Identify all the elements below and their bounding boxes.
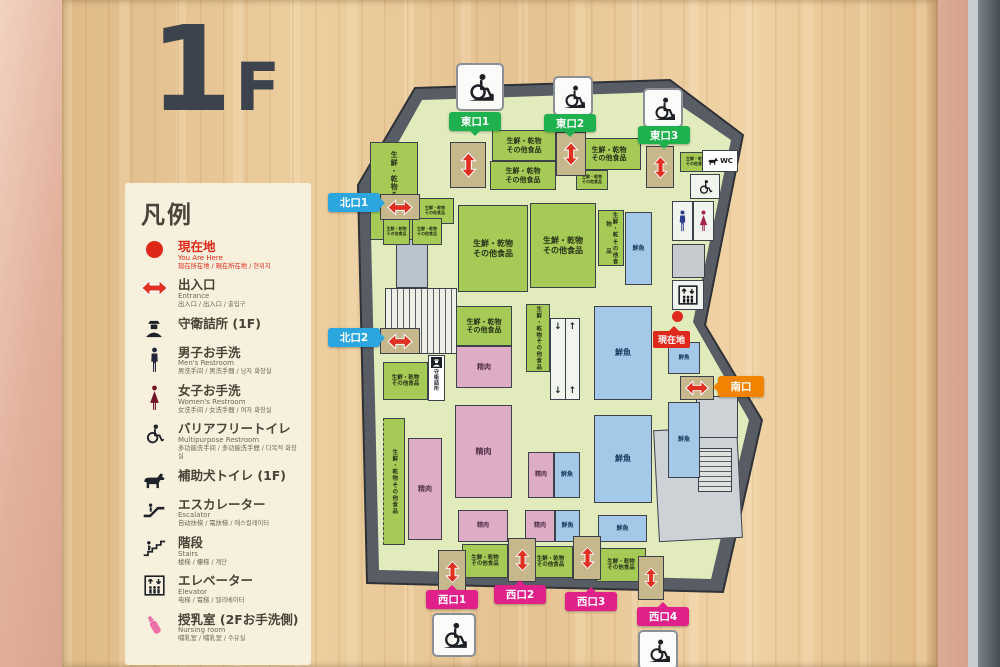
map-area-meat: 精肉 <box>458 510 508 542</box>
map-area-fresh: 生鮮・乾物その他食品 <box>383 218 410 245</box>
floor-map: ↓↓ ↑↑ 生鮮・乾物その他食品 生鮮・乾物その他食品 生鮮・乾物その他食品 生… <box>350 30 780 667</box>
legend-item-womens-restroom: 女子お手洗 Women's Restroom 女洗手间 / 女洗手間 / 여자 … <box>139 384 301 414</box>
elevator-icon <box>678 285 698 305</box>
map-area-fish: 鮮魚 <box>554 452 580 498</box>
map-area-fresh: 生鮮・乾物その他食品 <box>530 203 596 288</box>
wheelchair-ramp-sign <box>553 76 593 116</box>
map-area-fresh: 生鮮・乾物その他食品 <box>526 304 550 372</box>
map-area-fresh: 生鮮・乾物その他食品 <box>598 210 624 266</box>
legend-item-nursing-room: 授乳室 (2Fお手洗側) Nursing room 哺乳室 / 哺乳室 / 수유… <box>139 613 301 643</box>
door-frame-dark <box>978 0 1000 667</box>
floor-guide-sign: 1F 凡例 現在地 You Are Here 现在所在地 / 現在所在地 / 현… <box>0 0 1000 667</box>
man-icon <box>139 346 169 373</box>
assist-dog-icon <box>139 469 169 490</box>
legend-item-mens-restroom: 男子お手洗 Men's Restroom 男洗手间 / 男洗手間 / 남자 화장… <box>139 346 301 376</box>
exit-label-east-1: 東口1 <box>449 112 501 131</box>
exit-label-west-1: 西口1 <box>426 590 478 609</box>
elevator-icon <box>139 574 169 596</box>
map-area-meat: 精肉 <box>528 452 554 498</box>
map-area-fresh: 生鮮・乾物その他食品 <box>383 418 405 545</box>
escalator-icon <box>139 498 169 520</box>
exit-label-north-1: 北口1 <box>328 193 380 212</box>
entrance-arrow-icon <box>653 154 668 181</box>
exit-label-east-2: 東口2 <box>544 114 596 132</box>
map-area-fresh: 生鮮・乾物その他食品 <box>462 544 508 578</box>
service-room <box>696 396 738 438</box>
elevator-cell <box>672 280 704 310</box>
door-frame-light <box>968 0 978 667</box>
wheelchair-icon <box>697 179 713 195</box>
right-wall <box>938 0 968 667</box>
legend-item-current-location: 現在地 You Are Here 现在所在地 / 現在所在地 / 현위치 <box>139 240 301 270</box>
entrance-arrow-icon <box>580 544 595 572</box>
womens-restroom-cell <box>693 201 714 241</box>
map-area-fresh: 生鮮・乾物その他食品 <box>492 130 556 161</box>
legend-item-barrier-free-toilet: バリアフリートイレ Multipurpose Restroom 多功能洗手间 /… <box>139 422 301 460</box>
exit-west-4 <box>638 556 664 600</box>
nursing-bottle-icon <box>139 613 169 636</box>
exit-west-3 <box>573 536 601 580</box>
legend-item-escalator: エスカレーター Escalator 自动扶梯 / 電扶梯 / 에스컬레이터 <box>139 498 301 528</box>
legend-panel: 凡例 現在地 You Are Here 现在所在地 / 現在所在地 / 현위치 … <box>125 183 311 665</box>
map-area-fish: 鮮魚 <box>598 515 647 542</box>
exit-label-east-3: 東口3 <box>638 126 690 144</box>
guard-icon <box>139 317 169 338</box>
map-area-fresh: 生鮮・乾物その他食品 <box>383 362 428 400</box>
entrance-arrow-icon <box>644 564 658 592</box>
wheelchair-ramp-sign <box>638 630 678 667</box>
stairs-southeast <box>698 448 732 492</box>
entrance-arrows-icon <box>139 278 169 297</box>
service-room <box>672 244 705 278</box>
mens-restroom-cell <box>672 201 693 241</box>
current-location-label: 現在地 <box>653 331 690 348</box>
exit-east-1 <box>450 142 486 188</box>
wheelchair-ramp-icon <box>646 638 671 663</box>
exit-label-west-3: 西口3 <box>565 592 617 611</box>
entrance-arrow-icon <box>460 150 477 180</box>
escalator-bank: ↓↓ ↑↑ <box>550 318 580 400</box>
legend-item-entrance: 出入口 Entrance 出入口 / 出入口 / 출입구 <box>139 278 301 308</box>
floor-suffix: F <box>235 49 280 126</box>
woman-icon <box>698 209 709 233</box>
map-area-fish: 鮮魚 <box>625 212 652 285</box>
escalator-lane-up: ↑↑ <box>565 319 580 399</box>
escalator-lane-down: ↓↓ <box>551 319 565 399</box>
map-area-fresh: 生鮮・乾物その他食品 <box>577 138 641 170</box>
wheelchair-ramp-icon <box>465 72 495 102</box>
barrier-free-toilet <box>690 174 720 199</box>
legend-item-stairs: 階段 Stairs 楼梯 / 樓梯 / 계단 <box>139 536 301 566</box>
entrance-arrow-icon <box>683 380 711 396</box>
guard-icon <box>431 357 442 368</box>
wheelchair-ramp-sign <box>456 63 504 111</box>
map-area-meat: 精肉 <box>456 346 512 388</box>
map-area-fish: 鮮魚 <box>668 402 700 478</box>
wheelchair-ramp-sign <box>432 613 476 657</box>
current-location-icon <box>139 240 169 258</box>
legend-item-elevator: エレベーター Elevator 电梯 / 電梯 / 엘리베이터 <box>139 574 301 604</box>
legend-item-assist-dog-toilet: 補助犬トイレ (1F) <box>139 469 301 490</box>
woman-icon <box>139 384 169 411</box>
map-area-fish: 鮮魚 <box>594 306 652 400</box>
man-icon <box>677 209 688 233</box>
map-area-meat: 精肉 <box>455 405 512 498</box>
entrance-arrow-icon <box>563 140 579 168</box>
wheelchair-ramp-sign <box>643 88 683 128</box>
assist-dog-icon <box>707 156 719 166</box>
wheelchair-ramp-icon <box>651 96 676 121</box>
exit-label-south: 南口 <box>718 376 764 397</box>
map-area-fresh: 生鮮・乾物その他食品 <box>412 218 442 245</box>
left-wall <box>0 0 62 667</box>
stairs-icon <box>139 536 169 558</box>
exit-label-north-2: 北口2 <box>328 328 380 347</box>
legend-item-guard-station: 守衛詰所 (1F) <box>139 317 301 338</box>
map-area-fresh: 生鮮・乾物その他食品 <box>458 205 528 292</box>
floor-title: 1F <box>150 10 280 128</box>
assist-dog-wc: WC <box>702 150 738 172</box>
exit-label-west-4: 西口4 <box>637 607 689 626</box>
map-area-fresh: 生鮮・乾物その他食品 <box>456 306 512 346</box>
service-room <box>396 238 428 288</box>
exit-label-west-2: 西口2 <box>494 585 546 604</box>
map-area-meat: 精肉 <box>408 438 442 540</box>
wheelchair-ramp-icon <box>561 84 586 109</box>
wheelchair-ramp-icon <box>440 621 468 649</box>
wheelchair-icon <box>139 422 169 445</box>
floor-number: 1 <box>150 0 230 138</box>
map-area-fresh: 生鮮・乾物その他食品 <box>490 161 556 190</box>
map-guard-station: 守衛詰所 <box>428 355 445 401</box>
legend-title: 凡例 <box>141 195 301 230</box>
entrance-arrow-icon <box>515 546 530 574</box>
map-area-fish: 鮮魚 <box>594 415 652 503</box>
